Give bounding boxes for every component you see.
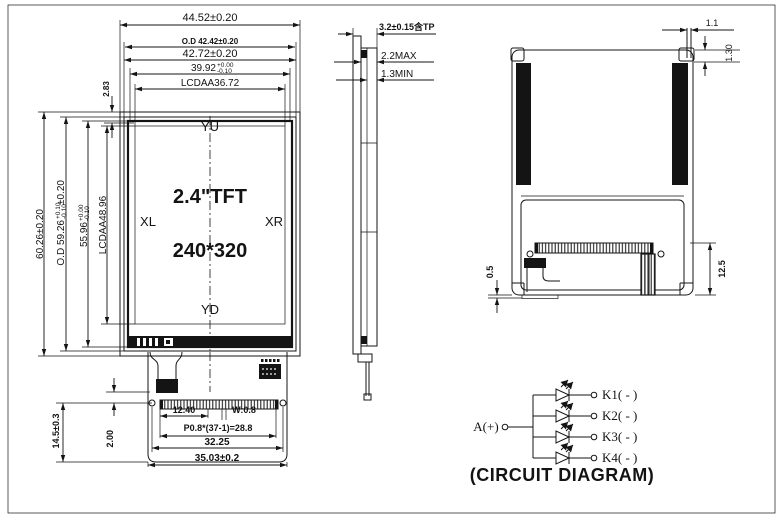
dimension-arrowhead <box>64 344 68 351</box>
dimension-arrowhead <box>86 340 90 347</box>
dim-od-width: O.D 42.42±0.20 <box>182 37 239 46</box>
dim-fpc-length: 14.5±0.3 <box>51 414 61 449</box>
engineering-drawing: YU XL XR YD 2.4"TFT 240*320 44.52±0.20 O… <box>0 0 784 519</box>
anode-label: A(+) <box>473 419 498 434</box>
svg-text:O.D 59.26: O.D 59.26 <box>56 220 67 266</box>
dim-aa-height: LCDAA48.96 <box>98 195 109 254</box>
cathode-label-k1: K1( - ) <box>602 387 637 402</box>
dim-overall-height: 60.26±0.20 <box>35 209 46 259</box>
dimension-arrowhead <box>130 72 137 76</box>
dim-hook-height: 1.30 <box>724 44 734 62</box>
fpc-tongue <box>522 295 558 299</box>
dimension-arrowhead <box>125 45 132 49</box>
adhesive-strip-left <box>516 63 531 185</box>
dimension-arrowhead <box>288 45 295 49</box>
dim-od-height: O.D 59.26 +0.10 -0.10 ±0.20 <box>55 180 68 266</box>
svg-text:39.92: 39.92 <box>191 63 216 74</box>
front-view: YU XL XR YD 2.4"TFT 240*320 <box>120 112 300 462</box>
svg-text:2.83: 2.83 <box>102 81 111 97</box>
dimension-arrowhead <box>124 58 131 62</box>
dimension-arrowhead <box>495 288 499 295</box>
dimension-arrowhead <box>703 62 707 69</box>
dim-va-width: 39.92 +0.00 -0.10 <box>191 62 234 75</box>
cathode-label-k3: K3( - ) <box>602 429 637 444</box>
cathode-label-k2: K2( - ) <box>602 408 637 423</box>
dimension-arrowhead <box>105 317 109 324</box>
screen-label-yu: YU <box>201 119 219 134</box>
dimension-arrowhead <box>708 243 712 250</box>
adhesive-strip-right <box>672 63 688 185</box>
dimension-arrowhead <box>152 446 159 450</box>
fpc-stiffener-block <box>156 379 178 393</box>
dimension-arrowhead <box>42 349 46 356</box>
screen-size-label: 2.4"TFT <box>173 186 247 208</box>
dim-lcd-max: 2.2MAX <box>381 51 417 62</box>
dim-hook-width: 1.1 <box>706 18 719 28</box>
dim-pin-width: W:0.8 <box>232 405 256 415</box>
dimension-arrowhead <box>148 463 155 467</box>
led-symbol <box>556 431 569 443</box>
dim-bezel-width: 42.72±0.20 <box>183 48 238 60</box>
dimension-arrowhead <box>346 32 353 36</box>
fpc-fold <box>641 254 655 295</box>
dim-fpc-width: 35.03±0.2 <box>195 453 240 464</box>
dimension-arrowhead <box>160 434 167 438</box>
dim-total-thickness: 3.2±0.15含TP <box>379 21 434 32</box>
rear-view <box>511 28 694 299</box>
dimension-arrowhead <box>110 123 114 130</box>
cathode-terminal <box>591 392 597 398</box>
dimension-arrowhead <box>354 60 361 64</box>
dim-aa-width: LCDAA36.72 <box>181 78 240 89</box>
dimension-arrowhead <box>680 28 687 32</box>
svg-text:60.26±0.20: 60.26±0.20 <box>35 209 46 259</box>
dimension-arrowhead <box>377 32 384 36</box>
dimension-arrowhead <box>201 414 208 418</box>
tp-glass-profile <box>353 36 361 354</box>
dimension-arrowhead <box>112 385 116 392</box>
dimension-arrowhead <box>278 87 285 91</box>
svg-text:14.5±0.3: 14.5±0.3 <box>51 414 61 449</box>
dim-od-height-tol-minus: -0.10 <box>61 204 68 219</box>
cathode-terminal <box>591 434 597 440</box>
screen-label-xl: XL <box>140 214 156 229</box>
dimension-arrowhead <box>283 72 290 76</box>
svg-text:0.5: 0.5 <box>485 266 495 279</box>
dim-lcd-min: 1.3MIN <box>381 69 413 80</box>
dimension-arrowhead <box>64 117 68 124</box>
dim-pin-pitch: P0.8*(37-1)=28.8 <box>184 423 253 433</box>
dimension-arrowhead <box>360 78 367 82</box>
dimension-arrowhead <box>135 87 142 91</box>
driver-ledge <box>128 336 292 348</box>
svg-text:12.5: 12.5 <box>717 260 727 278</box>
cathode-terminal <box>591 413 597 419</box>
dimension-arrowhead <box>61 455 65 462</box>
dim-va-height: 55.96 +0.00 -0.10 <box>78 204 91 247</box>
led-symbol <box>556 410 569 422</box>
sheet-border <box>8 5 775 513</box>
dimension-arrowhead <box>691 28 698 32</box>
dimension-arrowhead <box>61 403 65 410</box>
anode-terminal <box>502 424 508 430</box>
led-symbol <box>556 389 569 401</box>
dim-bottom-height: 12.5 <box>717 260 727 278</box>
svg-text:1.30: 1.30 <box>724 44 734 62</box>
cathode-terminal <box>591 455 597 461</box>
dim-edge-gap: 2.83 <box>102 81 111 97</box>
dim-hole-offset: 2.00 <box>105 430 115 448</box>
dimension-arrowhead <box>42 112 46 119</box>
dim-od-height-suffix: ±0.20 <box>56 180 67 205</box>
drawing-sheet: YU XL XR YD 2.4"TFT 240*320 44.52±0.20 O… <box>0 0 784 519</box>
fpc-hole-right <box>280 400 286 406</box>
dim-fpc-offset: 0.5 <box>485 266 495 279</box>
dimension-arrowhead <box>276 446 283 450</box>
rear-hole-right <box>658 251 664 257</box>
circuit-diagram: A(+) K1( - )K2( - )K3( - )K4( - ) (CIRCU… <box>470 380 654 485</box>
dimension-arrowhead <box>120 23 127 27</box>
side-view <box>353 36 377 400</box>
dimension-arrowhead <box>86 121 90 128</box>
dimension-arrowhead <box>495 298 499 305</box>
dimension-arrowhead <box>269 434 276 438</box>
rear-contact-strip <box>535 243 653 253</box>
svg-text:55.96: 55.96 <box>79 222 90 247</box>
hook-lines <box>687 28 691 58</box>
led-symbol <box>556 452 569 464</box>
dimension-arrowhead <box>703 43 707 50</box>
rear-hole-left <box>527 251 533 257</box>
rear-component <box>524 258 546 268</box>
svg-text:2.00: 2.00 <box>105 430 115 448</box>
dimension-arrowhead <box>293 23 300 27</box>
cathode-label-k4: K4( - ) <box>602 450 637 465</box>
fpc-component <box>259 359 281 379</box>
dimension-arrowhead <box>110 105 114 112</box>
circuit-caption: (CIRCUIT DIAGRAM) <box>470 465 654 485</box>
dimension-arrowhead <box>112 403 116 410</box>
dimension-arrowhead <box>289 58 296 62</box>
led-branches: K1( - )K2( - )K3( - )K4( - ) <box>533 380 637 465</box>
dimension-arrowhead <box>280 463 287 467</box>
dimension-arrowhead <box>160 414 167 418</box>
dimension-arrowhead <box>105 126 109 133</box>
dim-va-height-tol-minus: -0.10 <box>84 206 91 221</box>
dim-hole-span: 32.25 <box>204 437 229 448</box>
dim-pin-start: 12.40 <box>173 405 196 415</box>
screen-resolution-label: 240*320 <box>173 240 248 262</box>
screen-label-xr: XR <box>265 214 283 229</box>
screen-label-yd: YD <box>201 302 219 317</box>
fpc-tail-side <box>366 362 369 396</box>
dim-va-width-tol-minus: -0.10 <box>217 68 232 75</box>
dimension-arrowhead <box>708 288 712 295</box>
lcd-profile <box>361 48 377 346</box>
dim-overall-width: 44.52±0.20 <box>183 12 238 24</box>
svg-text:LCDAA48.96: LCDAA48.96 <box>98 195 109 254</box>
